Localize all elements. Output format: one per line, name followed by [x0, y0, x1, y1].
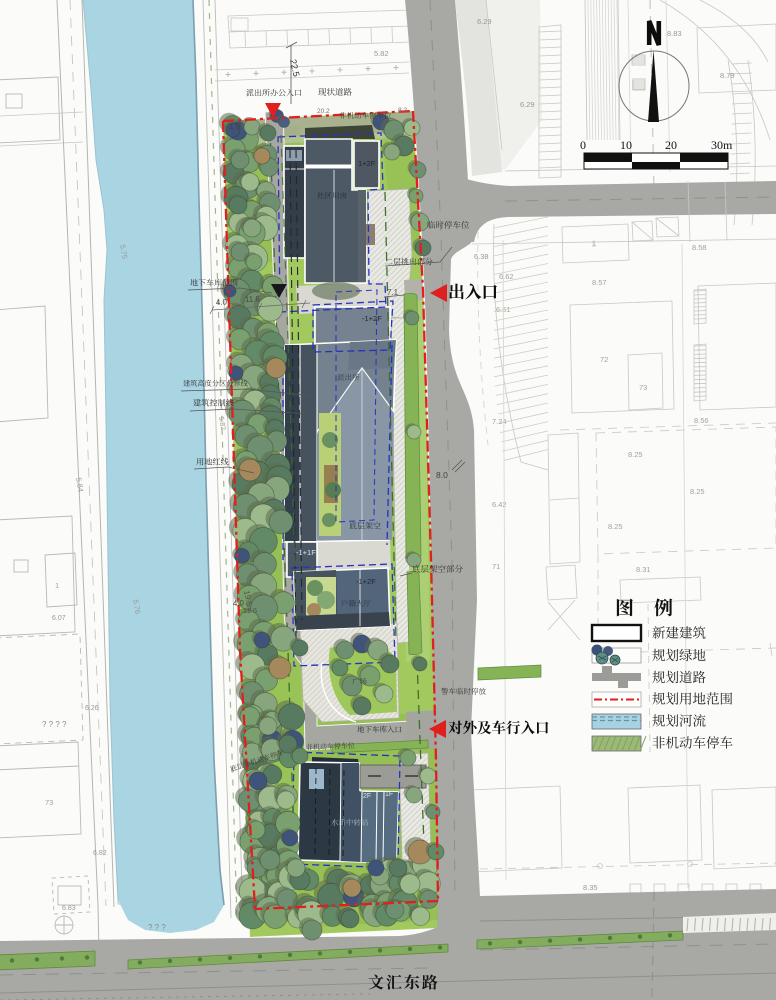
svg-text:30m: 30m: [711, 138, 733, 152]
svg-text:5.82: 5.82: [374, 49, 389, 58]
svg-text:71: 71: [492, 562, 500, 571]
svg-text:8.79: 8.79: [720, 71, 735, 80]
svg-text:6.26: 6.26: [85, 705, 99, 712]
svg-text:72: 72: [600, 355, 608, 364]
svg-text:73: 73: [45, 798, 53, 807]
svg-text:11.6: 11.6: [245, 294, 261, 304]
svg-text:20: 20: [665, 138, 677, 152]
svg-text:-1+2F: -1+2F: [362, 314, 382, 323]
svg-text:8.0: 8.0: [436, 470, 448, 480]
svg-text:4.0: 4.0: [229, 122, 241, 132]
svg-text:8.25: 8.25: [690, 487, 705, 496]
svg-text:7.24: 7.24: [492, 417, 507, 426]
svg-text:? ? ? ?: ? ? ? ?: [42, 720, 67, 729]
svg-text:6.38: 6.38: [474, 252, 489, 261]
svg-text:6.29: 6.29: [477, 17, 492, 26]
svg-text:20.2: 20.2: [317, 108, 330, 115]
svg-text:4.0: 4.0: [216, 297, 228, 307]
svg-text:6.82: 6.82: [93, 850, 107, 857]
svg-text:6.07: 6.07: [52, 615, 66, 622]
svg-text:8.31: 8.31: [636, 565, 651, 574]
svg-text:8.25: 8.25: [608, 522, 623, 531]
svg-text:8.35: 8.35: [583, 883, 598, 892]
svg-text:6.83: 6.83: [62, 905, 76, 912]
svg-text:? ? ?: ? ? ?: [148, 923, 166, 932]
svg-text:8.25: 8.25: [628, 450, 643, 459]
svg-text:6.29: 6.29: [520, 100, 535, 109]
svg-text:8.83: 8.83: [667, 29, 682, 38]
svg-text:8.2: 8.2: [398, 107, 407, 114]
svg-text:8.58: 8.58: [692, 243, 707, 252]
svg-text:-1+1F: -1+1F: [296, 548, 316, 557]
svg-text:1+2F: 1+2F: [358, 159, 376, 168]
svg-text:73: 73: [639, 383, 647, 392]
svg-text:11.6: 11.6: [243, 606, 257, 615]
svg-text:1: 1: [55, 581, 59, 590]
svg-text:1F: 1F: [385, 791, 393, 798]
svg-text:-1+2F: -1+2F: [356, 577, 376, 586]
svg-text:10: 10: [620, 138, 632, 152]
svg-text:0: 0: [580, 138, 586, 152]
svg-text:8.57: 8.57: [592, 278, 607, 287]
svg-text:8.56: 8.56: [694, 416, 709, 425]
svg-text:2F: 2F: [363, 793, 371, 800]
